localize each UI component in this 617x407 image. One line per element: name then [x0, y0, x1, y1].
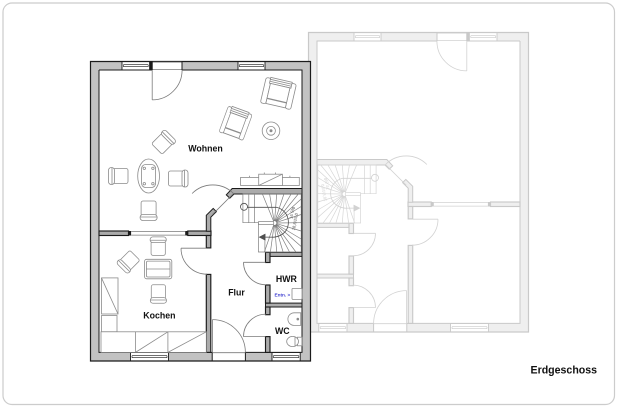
svg-text:WC: WC — [275, 326, 290, 336]
svg-text:Wohnen: Wohnen — [188, 143, 223, 153]
svg-text:Kochen: Kochen — [143, 310, 175, 320]
svg-text:Erdgeschoss: Erdgeschoss — [531, 365, 598, 377]
svg-text:Flur: Flur — [228, 287, 245, 297]
svg-text:Entn. >: Entn. > — [275, 292, 291, 297]
svg-text:HWR: HWR — [276, 274, 298, 284]
